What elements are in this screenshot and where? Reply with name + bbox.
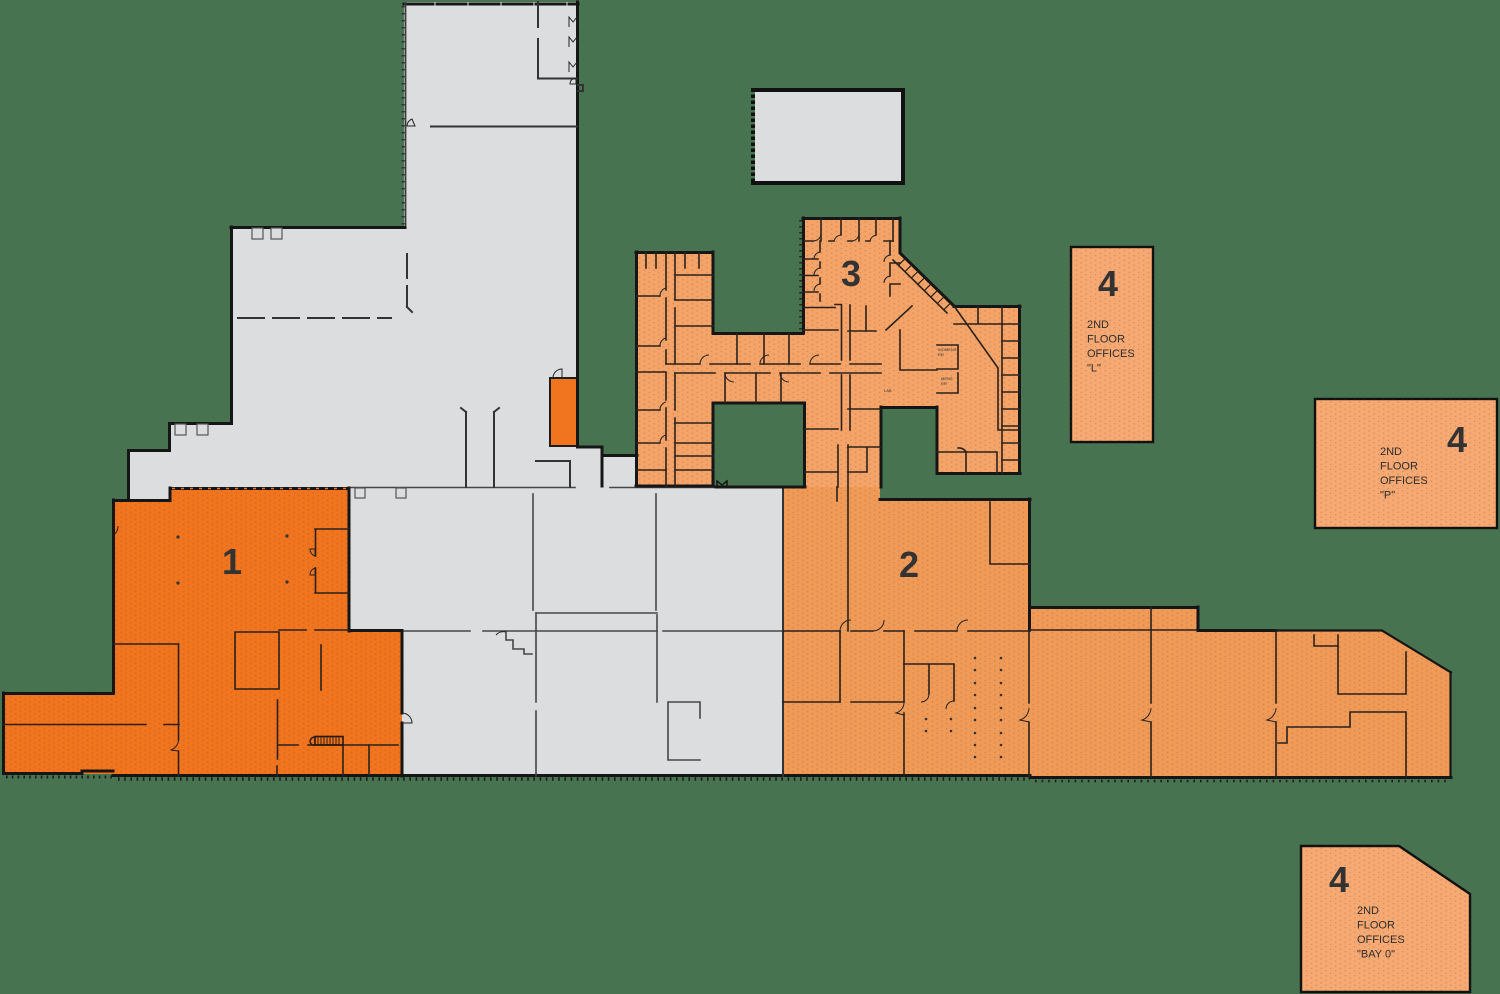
svg-text:LAB: LAB — [884, 388, 892, 393]
svg-text:FLOOR: FLOOR — [1087, 334, 1125, 346]
svg-text:OFFICES: OFFICES — [1087, 348, 1135, 360]
svg-text:OFFICES: OFFICES — [1380, 475, 1428, 487]
svg-text:4: 4 — [1098, 263, 1118, 304]
svg-text:"P": "P" — [1380, 490, 1395, 502]
svg-text:"BAY 0": "BAY 0" — [1357, 949, 1395, 961]
svg-text:OFFICES: OFFICES — [1357, 934, 1405, 946]
svg-text:FLOOR: FLOOR — [1380, 461, 1418, 473]
svg-text:2: 2 — [899, 544, 919, 585]
svg-text:2ND: 2ND — [1357, 905, 1379, 917]
svg-text:4: 4 — [1447, 419, 1467, 460]
svg-text:2ND: 2ND — [1380, 446, 1402, 458]
svg-text:"L": "L" — [1087, 363, 1101, 375]
svg-text:1: 1 — [222, 541, 242, 582]
svg-text:2ND: 2ND — [1087, 319, 1109, 331]
svg-text:RR: RR — [941, 381, 947, 386]
svg-text:RR: RR — [938, 352, 944, 357]
svg-text:4: 4 — [1329, 859, 1349, 900]
svg-text:3: 3 — [841, 253, 861, 294]
svg-text:FLOOR: FLOOR — [1357, 920, 1395, 932]
